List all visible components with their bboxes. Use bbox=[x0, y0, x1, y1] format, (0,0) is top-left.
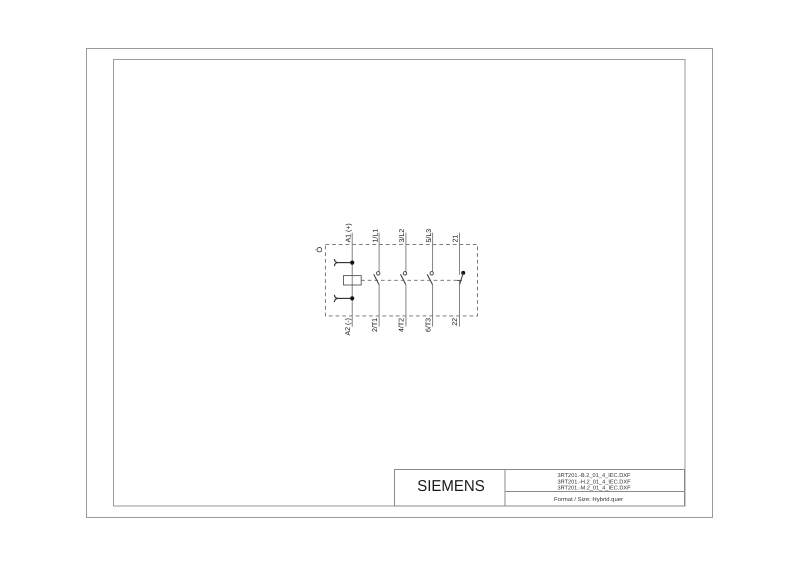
svg-text:Format / Size: Hybrid.quer: Format / Size: Hybrid.quer bbox=[554, 496, 623, 503]
svg-text:SIEMENS: SIEMENS bbox=[417, 478, 485, 495]
svg-text:21: 21 bbox=[453, 235, 460, 243]
svg-text:1/L1: 1/L1 bbox=[371, 229, 379, 243]
svg-text:3RT201.-M.2_01_4_IEC.DXF: 3RT201.-M.2_01_4_IEC.DXF bbox=[558, 486, 632, 492]
svg-text:6/T3: 6/T3 bbox=[424, 318, 432, 332]
svg-text:5/L3: 5/L3 bbox=[425, 229, 433, 243]
svg-text:3RT201.-B.2_01_4_IEC.DXF: 3RT201.-B.2_01_4_IEC.DXF bbox=[558, 473, 632, 479]
svg-text:A1 (+): A1 (+) bbox=[345, 223, 353, 242]
svg-text:4/T2: 4/T2 bbox=[398, 318, 406, 332]
svg-text:22: 22 bbox=[452, 318, 459, 326]
svg-text:A2 (-): A2 (-) bbox=[344, 318, 352, 336]
svg-text:2/T1: 2/T1 bbox=[371, 318, 379, 332]
svg-text:3/L2: 3/L2 bbox=[398, 229, 406, 243]
svg-text:Ò: Ò bbox=[315, 247, 324, 253]
svg-text:3RT201.-H.2_01_4_IEC.DXF: 3RT201.-H.2_01_4_IEC.DXF bbox=[558, 479, 632, 485]
